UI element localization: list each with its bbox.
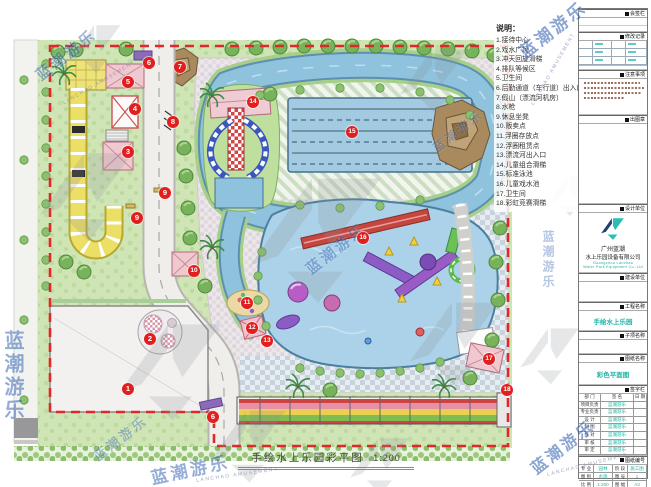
project-name: 手绘水上乐园 — [579, 311, 647, 331]
legend-item: 18.彩虹竞赛滑梯 — [496, 199, 588, 209]
table-cell: 蓝潮游乐 — [601, 402, 634, 410]
legend: 说明： 1.接待中心2.戏水广场3.冲天回旋滑梯4.排队等候区5.卫生间6.后勤… — [494, 20, 590, 212]
title-block: 会签栏 修改记录 注意事项 出图章 设计单位 广州蓝潮 水上乐园设备有限公司 G… — [578, 8, 648, 479]
table-cell: 园林 — [594, 465, 613, 473]
drawing-name: 彩色平面图 — [579, 363, 647, 385]
plan-scale: 1:200 — [373, 453, 401, 463]
table-cell: 比 例 — [579, 481, 594, 487]
legend-item: 10.贩卖点 — [496, 122, 588, 132]
table-cell: 签 名 — [601, 394, 634, 402]
table-cell — [634, 424, 647, 432]
tb-header-drawing: 图纸名称 — [579, 354, 647, 363]
tb-revision-table — [579, 41, 647, 66]
table-cell: 部 门 — [579, 394, 601, 402]
plan-title: 手绘水上乐园彩平图 — [251, 452, 364, 464]
legend-item: 13.漂流河出入口 — [496, 151, 588, 161]
table-cell: 蓝潮游乐 — [601, 424, 634, 432]
table-cell — [634, 417, 647, 425]
rainbow-racing-slide — [237, 393, 511, 427]
tb-header-subproject: 子项名称 — [579, 331, 647, 340]
table-cell: 蓝潮游乐 — [601, 417, 634, 425]
table-cell — [634, 409, 647, 417]
company-name-cn2: 水上乐园设备有限公司 — [579, 253, 647, 261]
table-cell: 图 别 — [579, 473, 594, 481]
drawing-sheet: 说明： 1.接待中心2.戏水广场3.冲天回旋滑梯4.排队等候区5.卫生间6.后勤… — [0, 0, 651, 487]
table-cell: 制 图 — [579, 424, 601, 432]
table-cell: 图 幅 — [613, 481, 628, 487]
table-cell: 专业负责人 — [579, 409, 601, 417]
kiosk — [172, 252, 198, 276]
tb-header-stamp: 出图章 — [579, 115, 647, 124]
tb-notes — [579, 79, 647, 115]
signature-table: 部 门签 名日 期项目负责人蓝潮游乐专业负责人蓝潮游乐设 计蓝潮游乐制 图蓝潮游… — [579, 394, 647, 456]
legend-item: 14.儿童组合滑梯 — [496, 161, 588, 171]
legend-item: 6.后勤通道（车行道）出入口 — [496, 84, 588, 94]
legend-item: 2.戏水广场 — [496, 46, 588, 56]
tb-header-designer: 设计单位 — [579, 204, 647, 213]
tb-header-revisions: 修改记录 — [579, 32, 647, 41]
service-gate-north — [134, 51, 152, 60]
tb-subproject-box — [579, 340, 647, 354]
table-cell — [634, 440, 647, 448]
table-cell: 审 核 — [579, 440, 601, 448]
table-cell: 校 对 — [579, 432, 601, 440]
legend-item: 16.儿童戏水池 — [496, 180, 588, 190]
sheet-info-table: 专 业园林阶 段施工图图 别水施图 号1比 例1:200图 幅A3 — [579, 465, 647, 487]
legend-item: 4.排队等候区 — [496, 65, 588, 75]
table-cell: 设 计 — [579, 417, 601, 425]
tb-header-signatures: 签字栏 — [579, 385, 647, 394]
legend-item: 15.标准泳池 — [496, 170, 588, 180]
table-cell: 蓝潮游乐 — [601, 440, 634, 448]
table-cell: 蓝潮游乐 — [601, 447, 634, 455]
table-cell — [634, 432, 647, 440]
float-storage — [227, 290, 269, 316]
tb-header-notes: 注意事项 — [579, 70, 647, 79]
legend-item: 11.浮圈存放点 — [496, 132, 588, 142]
tb-header-signoff: 会签栏 — [579, 9, 647, 18]
company-name-cn1: 广州蓝潮 — [579, 244, 647, 253]
combo-slide-island — [203, 84, 280, 211]
legend-item: 3.冲天回旋滑梯 — [496, 55, 588, 65]
table-cell: 1 — [628, 473, 647, 481]
tb-header-client: 建设单位 — [579, 273, 647, 282]
table-cell: 图 号 — [613, 473, 628, 481]
tb-stamp-area — [579, 124, 647, 204]
table-cell: 阶 段 — [613, 465, 628, 473]
company-logo — [598, 215, 628, 241]
table-cell — [634, 447, 647, 455]
legend-item: 12.浮圈租赁点 — [496, 142, 588, 152]
tb-signoff-box — [579, 18, 647, 32]
table-cell: 日 期 — [634, 394, 647, 402]
table-cell: 蓝潮游乐 — [601, 432, 634, 440]
table-cell — [634, 402, 647, 410]
table-cell: A3 — [628, 481, 647, 487]
table-cell: 蓝潮游乐 — [601, 409, 634, 417]
table-cell: 水施 — [594, 473, 613, 481]
tb-client-box — [579, 282, 647, 302]
plan-caption: 手绘水上乐园彩平图 1:200 — [238, 448, 414, 470]
legend-title: 说明： — [496, 23, 588, 34]
tb-header-project: 工程名称 — [579, 302, 647, 311]
tb-header-sheetinfo: 图纸编号 — [579, 456, 647, 465]
table-cell: 施工图 — [628, 465, 647, 473]
company-name-en2: Water Park Equipment Co.,Ltd — [579, 265, 647, 269]
legend-item: 1.接待中心 — [496, 36, 588, 46]
legend-item: 9.休息坐凳 — [496, 113, 588, 123]
company-block: 广州蓝潮 水上乐园设备有限公司 Guangzhou Lanchao Water … — [579, 213, 647, 273]
legend-item: 17.卫生间 — [496, 190, 588, 200]
table-cell: 项目负责人 — [579, 402, 601, 410]
legend-item: 5.卫生间 — [496, 74, 588, 84]
table-cell: 1:200 — [594, 481, 613, 487]
table-cell: 专 业 — [579, 465, 594, 473]
table-cell: 审 定 — [579, 447, 601, 455]
legend-item: 8.水枪 — [496, 103, 588, 113]
legend-item: 7.假山（漂流河机房） — [496, 94, 588, 104]
